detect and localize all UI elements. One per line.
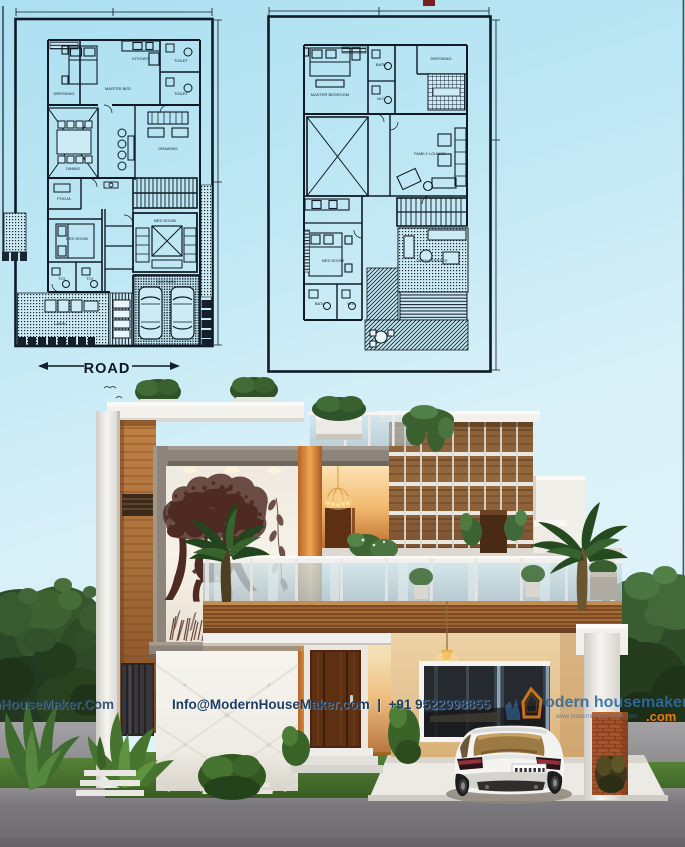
svg-text:TOI.: TOI. [86, 276, 94, 281]
svg-text:BED ROOM: BED ROOM [154, 218, 176, 223]
svg-text:BATH: BATH [315, 301, 325, 306]
svg-text:LAWN: LAWN [54, 321, 66, 326]
svg-text:KITCHEN: KITCHEN [132, 56, 150, 61]
svg-text:MASTER BED: MASTER BED [105, 86, 131, 91]
svg-text:DRAWING: DRAWING [158, 146, 177, 151]
svg-text:DINING: DINING [66, 166, 80, 171]
svg-text:BATH: BATH [376, 62, 386, 67]
svg-text:Info@ModernHouseMaker.com |: Info@ModernHouseMaker.com | +91 95229988… [172, 697, 491, 712]
svg-text:CAR PARK: CAR PARK [156, 279, 176, 284]
svg-text:BED ROOM: BED ROOM [322, 258, 344, 263]
svg-text:|: | [123, 697, 127, 712]
svg-text:BED ROOM: BED ROOM [66, 236, 88, 241]
svg-text:DRESSING: DRESSING [431, 56, 452, 61]
svg-text:DRESSING: DRESSING [54, 91, 75, 96]
svg-text:MASTER BEDROOM: MASTER BEDROOM [311, 92, 349, 97]
svg-text:ROAD: ROAD [84, 361, 131, 377]
svg-text:TOI.: TOI. [58, 276, 66, 281]
svg-text:W.C: W.C [377, 96, 385, 101]
svg-text:TOILET: TOILET [174, 91, 188, 96]
svg-text:POOJA: POOJA [57, 196, 71, 201]
svg-text:ModernHouseMaker.Com: ModernHouseMaker.Com [0, 697, 114, 712]
svg-text:OPEN TERRACE: OPEN TERRACE [416, 258, 448, 263]
svg-text:TOILET: TOILET [174, 58, 188, 63]
svg-text:FAMILY LOUNGE: FAMILY LOUNGE [414, 151, 446, 156]
svg-text:www modernhousemaker com: www modernhousemaker com [555, 714, 637, 720]
svg-text:W.C: W.C [347, 301, 355, 306]
svg-text:.com: .com [646, 709, 676, 724]
